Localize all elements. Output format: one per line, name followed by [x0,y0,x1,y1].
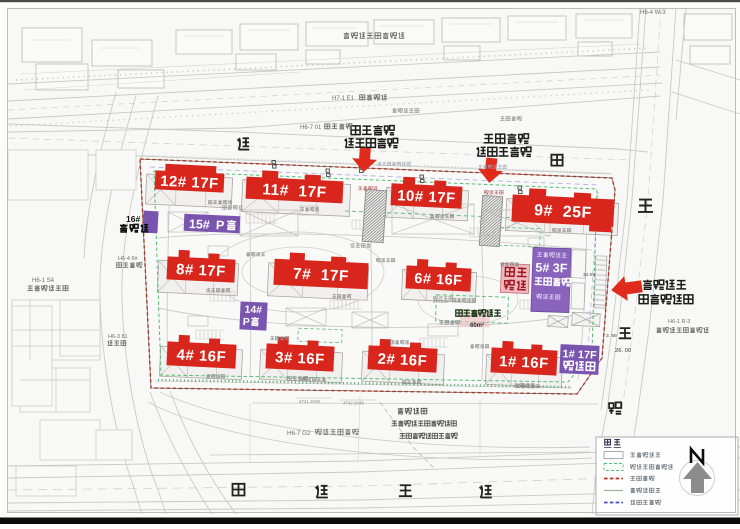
svg-text:16#: 16# [126,214,140,224]
svg-text:14#: 14# [244,304,262,317]
svg-text:4742 2049: 4742 2049 [343,401,364,406]
svg-text:3. 59: 3. 59 [606,333,617,339]
svg-text:9# 25F: 9# 25F [534,202,593,222]
svg-text:8# 17F: 8# 17F [176,261,226,280]
svg-text:4741 2048: 4741 2048 [299,399,320,404]
svg-text:3# 16F: 3# 16F [275,349,325,368]
svg-text:H6-7 01: H6-7 01 [300,125,322,131]
svg-text:1# 16F: 1# 16F [499,353,549,372]
svg-text:10# 17F: 10# 17F [397,187,456,207]
svg-text:2# 16F: 2# 16F [377,350,427,369]
svg-text:1# 17F: 1# 17F [562,348,597,361]
svg-text:H7-1 E1: H7-1 E1 [332,96,355,102]
svg-text:H6-1 R-3: H6-1 R-3 [668,319,690,325]
svg-text:34.05: 34.05 [583,272,595,278]
svg-text:26. 00: 26. 00 [615,348,631,354]
svg-text:H6-4 W-3: H6-4 W-3 [640,10,666,16]
svg-text:15#: 15# [189,217,210,232]
svg-text:P: P [216,218,225,232]
svg-text:H6-3 81: H6-3 81 [108,334,128,340]
svg-text:7# 17F: 7# 17F [293,266,350,286]
svg-text:12# 17F: 12# 17F [160,173,219,193]
svg-text:H6-7 G2: H6-7 G2 [287,430,311,437]
svg-text:60m²: 60m² [470,322,484,329]
svg-text:4# 16F: 4# 16F [176,346,226,365]
svg-text:6# 16F: 6# 16F [414,271,463,289]
svg-text:5# 3F: 5# 3F [535,260,568,275]
svg-text:P: P [242,316,250,328]
svg-text:11# 17F: 11# 17F [262,181,327,201]
svg-text:H6-1 S4: H6-1 S4 [32,278,55,284]
svg-text:H6-4 6#: H6-4 6# [118,256,139,262]
